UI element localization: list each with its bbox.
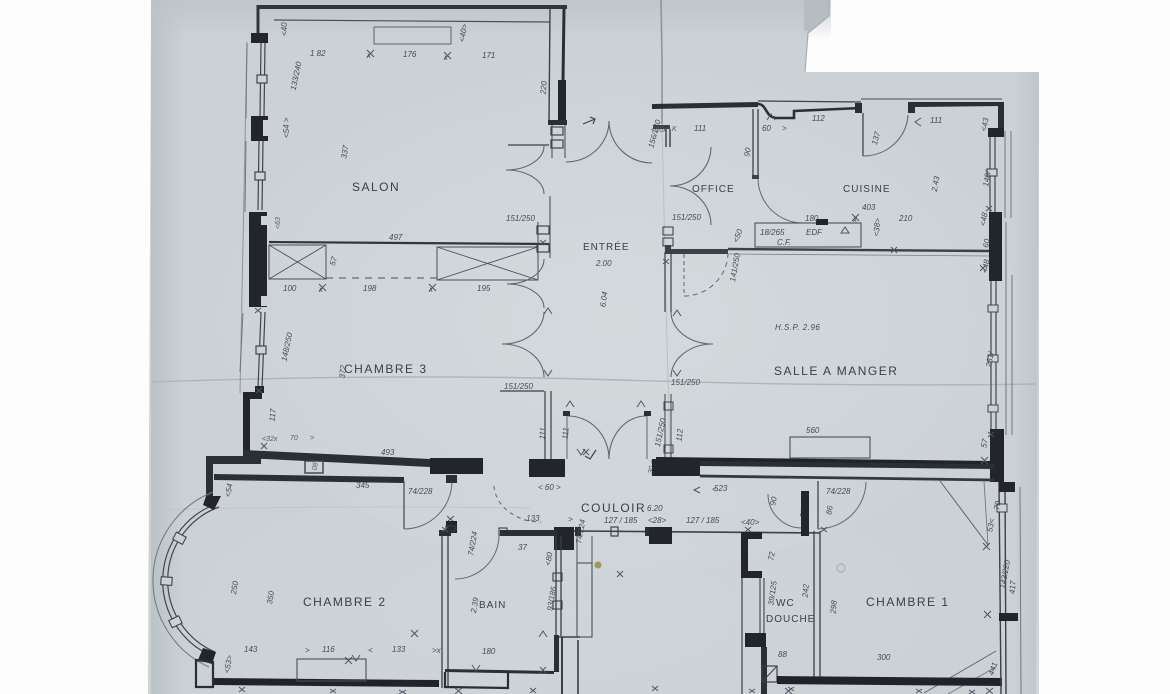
svg-text:171: 171 [482,51,495,60]
svg-text:112: 112 [812,114,825,123]
svg-text:417: 417 [1008,580,1018,595]
svg-text:100: 100 [283,284,297,293]
svg-text:560: 560 [806,426,820,435]
svg-text:117: 117 [268,408,278,422]
svg-text:133: 133 [392,645,406,654]
svg-text:BAIN: BAIN [479,600,506,611]
svg-text:220: 220 [539,80,549,96]
svg-text:COULOIR: COULOIR [581,501,646,515]
svg-text:74/228: 74/228 [826,487,851,496]
svg-text:<40: <40 [280,22,289,36]
svg-text:372: 372 [338,364,348,379]
svg-text:6.20: 6.20 [647,504,663,513]
svg-text:180: 180 [805,214,819,223]
svg-text:523: 523 [714,484,728,493]
svg-text:ENTRÉE: ENTRÉE [583,240,630,253]
svg-text:151/250: 151/250 [671,378,700,387]
svg-text:242: 242 [801,583,811,599]
svg-text:<54 >: <54 > [282,117,291,138]
svg-text:2.00: 2.00 [595,259,612,268]
svg-text:<26x: <26x [651,127,667,134]
svg-text:70: 70 [290,435,298,442]
svg-text:>: > [305,646,310,655]
svg-text:151/250: 151/250 [506,214,535,223]
svg-text:< 60 >: < 60 > [538,483,561,492]
svg-text:>: > [568,515,573,524]
svg-text:SALLE A MANGER: SALLE A MANGER [774,364,898,378]
svg-text:180: 180 [482,647,496,656]
svg-text:DOUCHE: DOUCHE [766,614,815,625]
svg-text:EDF: EDF [806,228,823,237]
svg-text:>: > [310,435,314,442]
svg-text:111: 111 [538,427,548,440]
svg-text:111: 111 [561,427,571,440]
svg-text:C.F.: C.F. [777,238,791,247]
svg-text:127 / 185: 127 / 185 [686,516,720,525]
svg-text:1 82: 1 82 [310,49,326,58]
svg-text:74/228: 74/228 [408,487,433,496]
svg-text:88: 88 [778,650,787,659]
svg-text:300: 300 [877,653,891,662]
svg-text:08: 08 [311,462,319,471]
svg-text:.133: .133 [524,514,540,523]
svg-text:<28>: <28> [648,516,667,525]
svg-text:SALON: SALON [352,180,400,194]
svg-text:<38>: <38> [872,217,883,236]
svg-text:493: 493 [381,448,395,457]
svg-text:151/250: 151/250 [672,213,701,222]
svg-text:176: 176 [403,50,417,59]
svg-text:CHAMBRE 1: CHAMBRE 1 [866,595,950,609]
svg-text:>: > [782,124,787,133]
svg-text:18/265: 18/265 [760,228,785,237]
svg-text:<: < [368,646,373,655]
svg-text:127 / 185: 127 / 185 [604,516,638,525]
svg-text:CHAMBRE 2: CHAMBRE 2 [303,595,387,609]
svg-text:116: 116 [322,645,335,654]
svg-text:60: 60 [762,124,771,133]
svg-text:37: 37 [518,543,527,552]
svg-text:CUISINE: CUISINE [843,184,891,195]
svg-text:>x: >x [432,646,442,655]
svg-text:<32x: <32x [262,436,278,443]
svg-text:198: 198 [363,284,377,293]
svg-text:403: 403 [862,203,876,212]
svg-text:K: K [672,126,677,133]
svg-text:<63: <63 [275,217,282,229]
svg-text:111: 111 [930,116,942,125]
svg-text:111: 111 [694,124,706,133]
svg-text:OFFICE: OFFICE [692,184,735,195]
svg-text:WC: WC [776,598,795,609]
svg-text:298: 298 [829,599,839,615]
svg-text:210: 210 [898,214,913,223]
svg-text:345: 345 [356,481,370,490]
svg-text:195: 195 [477,284,491,293]
svg-text:151/250: 151/250 [504,382,533,391]
svg-text:112: 112 [675,428,685,442]
svg-text:143: 143 [244,645,258,654]
svg-text:H.S.P. 2.96: H.S.P. 2.96 [775,323,820,332]
svg-text:CHAMBRE 3: CHAMBRE 3 [344,362,428,376]
svg-text:<40>: <40> [741,518,760,527]
svg-text:497: 497 [389,233,403,242]
